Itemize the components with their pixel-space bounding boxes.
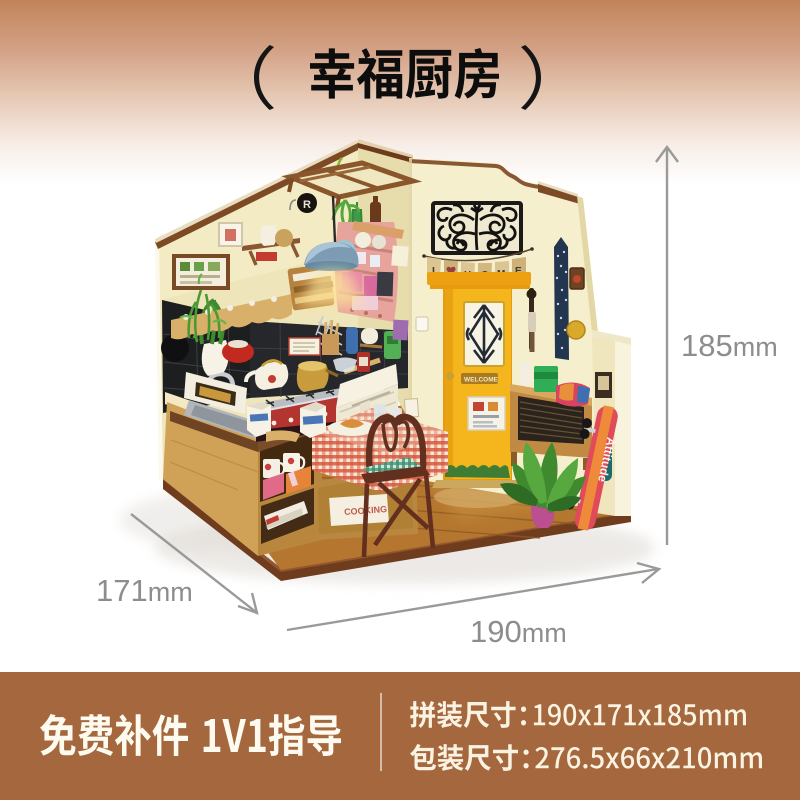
svg-text:185mm: 185mm [681,328,778,363]
svg-text:171mm: 171mm [96,573,193,608]
svg-text:190mm: 190mm [470,614,567,649]
svg-text:R: R [303,199,311,211]
svg-text:WELCOME: WELCOME [464,377,499,384]
